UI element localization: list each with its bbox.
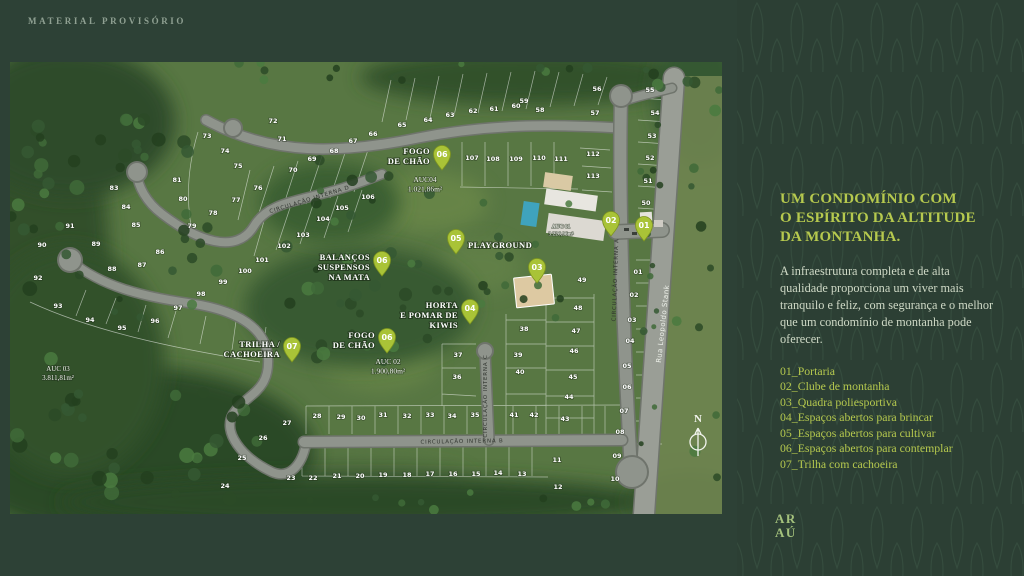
amenity-label: FOGO: [348, 330, 375, 340]
lot-number: 109: [509, 155, 523, 163]
lot-number: 39: [513, 351, 523, 359]
lot-number: 22: [308, 474, 317, 482]
lot-number: 46: [569, 347, 579, 355]
lot-number: 26: [258, 434, 268, 442]
lot-number: 42: [529, 411, 538, 419]
lot-number: 66: [368, 130, 378, 138]
lot-number: 52: [645, 154, 654, 162]
lot-number: 92: [33, 274, 42, 282]
panel-heading: UM CONDOMÍNIO COM O ESPÍRITO DA ALTITUDE…: [780, 190, 995, 247]
lot-number: 59: [519, 97, 529, 105]
svg-text:04: 04: [464, 304, 476, 313]
lot-number: 49: [577, 276, 587, 284]
lot-number: 32: [402, 412, 411, 420]
lot-number: 30: [356, 414, 366, 422]
lot-number: 19: [378, 471, 388, 479]
lot-number: 86: [155, 248, 165, 256]
auc-area-label: 1.021,86m²: [408, 185, 443, 194]
road-label: CIRCULAÇÃO INTERNA B: [420, 437, 503, 445]
svg-text:02: 02: [605, 216, 616, 225]
legend-item-07: 07_Trilha com cachoeira: [780, 457, 995, 473]
lot-number: 93: [53, 302, 62, 310]
amenity-label: TRILHA /: [239, 339, 280, 349]
lot-number: 97: [173, 304, 182, 312]
lot-number: 72: [268, 117, 277, 125]
masterplan-map-canvas: 0102030405060708091011121314151617181920…: [10, 62, 722, 514]
amenity-label: DE CHÃO: [388, 156, 430, 166]
amenity-label: BALANÇOS: [320, 252, 370, 262]
amenity-label: DE CHÃO: [333, 340, 375, 350]
lot-number: 87: [137, 261, 146, 269]
lot-number: 73: [202, 132, 211, 140]
lot-number: 36: [452, 373, 462, 381]
lot-number: 65: [397, 121, 407, 129]
lot-number: 05: [622, 362, 632, 370]
legend-item-01: 01_Portaria: [780, 364, 995, 380]
lot-number: 113: [586, 172, 600, 180]
lot-number: 94: [85, 316, 95, 324]
lot-number: 04: [625, 337, 635, 345]
lot-number: 48: [573, 304, 583, 312]
panel-body-text: A infraestrutura completa e de alta qual…: [780, 263, 995, 348]
gatehouse: [654, 220, 663, 227]
lot-number: 62: [468, 107, 477, 115]
legend-item-04: 04_Espaços abertos para brincar: [780, 410, 995, 426]
pool: [520, 201, 539, 227]
lot-number: 56: [592, 85, 602, 93]
lot-number: 23: [286, 474, 295, 482]
lot-number: 104: [316, 215, 330, 223]
lot-number: 14: [493, 469, 503, 477]
lot-number: 20: [355, 472, 365, 480]
lot-number: 01: [633, 268, 643, 276]
lot-number: 24: [220, 482, 230, 490]
lot-number: 47: [571, 327, 580, 335]
lot-number: 25: [237, 454, 247, 462]
lot-number: 74: [220, 147, 230, 155]
lot-number: 08: [615, 428, 625, 436]
amenity-label: PLAYGROUND: [468, 240, 532, 250]
lot-number: 57: [590, 109, 599, 117]
legend-item-06: 06_Espaços abertos para contemplar: [780, 441, 995, 457]
lot-number: 107: [465, 154, 479, 162]
lot-number: 78: [208, 209, 218, 217]
auc-area-label: 1.900,80m²: [371, 367, 406, 376]
lot-number: 60: [511, 102, 521, 110]
lot-number: 07: [619, 407, 628, 415]
lot-number: 16: [448, 470, 458, 478]
lot-number: 98: [196, 290, 206, 298]
lot-number: 58: [535, 106, 545, 114]
lot-number: 111: [554, 155, 568, 163]
lot-number: 99: [218, 278, 228, 286]
lot-number: 28: [312, 412, 322, 420]
svg-text:01: 01: [638, 221, 650, 230]
lot-number: 70: [288, 166, 298, 174]
lot-number: 105: [335, 204, 349, 212]
provisional-material-watermark: MATERIAL PROVISÓRIO: [28, 16, 186, 26]
lot-number: 69: [307, 155, 317, 163]
masterplan-map: 0102030405060708091011121314151617181920…: [10, 62, 722, 514]
lot-number: 54: [650, 109, 660, 117]
lot-number: 51: [643, 177, 653, 185]
auc-area-label: AUC04: [413, 175, 437, 184]
lot-number: 03: [627, 316, 636, 324]
lot-number: 84: [121, 203, 131, 211]
lot-number: 71: [277, 135, 287, 143]
lot-number: 09: [612, 452, 622, 460]
lot-number: 02: [629, 291, 638, 299]
lot-number: 102: [277, 242, 291, 250]
lot-number: 29: [336, 413, 346, 421]
lot-number: 106: [361, 193, 375, 201]
lot-number: 90: [37, 241, 47, 249]
amenity-label: HORTA: [426, 300, 459, 310]
lot-number: 85: [131, 221, 141, 229]
cul-de-sac: [128, 163, 146, 181]
legend-item-02: 02_Clube de montanha: [780, 379, 995, 395]
lot-number: 12: [553, 483, 562, 491]
lot-number: 68: [329, 147, 339, 155]
svg-text:07: 07: [286, 342, 297, 351]
lot-number: 55: [645, 86, 655, 94]
svg-text:N: N: [694, 413, 702, 425]
lot-number: 17: [425, 470, 434, 478]
lot-number: 75: [233, 162, 243, 170]
lot-number: 27: [282, 419, 291, 427]
lot-number: 91: [65, 222, 75, 230]
lot-number: 44: [564, 393, 574, 401]
lot-number: 61: [489, 105, 499, 113]
lot-number: 06: [622, 383, 632, 391]
lot-number: 101: [255, 256, 269, 264]
amenities-legend: 01_Portaria 02_Clube de montanha 03_Quad…: [780, 364, 995, 473]
lot-number: 79: [187, 222, 197, 230]
lot-number: 67: [348, 137, 357, 145]
lot-number: 88: [107, 265, 117, 273]
legend-item-05: 05_Espaços abertos para cultivar: [780, 426, 995, 442]
lot-number: 15: [471, 470, 481, 478]
svg-text:06: 06: [381, 333, 393, 342]
lot-number: 43: [560, 415, 569, 423]
lot-number: 100: [238, 267, 252, 275]
lot-number: 89: [91, 240, 101, 248]
lot-number: 83: [109, 184, 118, 192]
cul-de-sac: [225, 120, 241, 136]
lot-number: 37: [453, 351, 462, 359]
lot-number: 13: [517, 470, 526, 478]
lot-number: 34: [447, 412, 457, 420]
amenity-label: FOGO: [403, 146, 430, 156]
lot-number: 40: [515, 368, 525, 376]
lot-number: 108: [486, 155, 500, 163]
lot-number: 33: [425, 411, 434, 419]
auc-area-label: AUC 02: [375, 357, 400, 366]
legend-item-03: 03_Quadra poliesportiva: [780, 395, 995, 411]
amenity-label: NA MATA: [329, 272, 371, 282]
info-panel: UM CONDOMÍNIO COM O ESPÍRITO DA ALTITUDE…: [737, 0, 1024, 576]
svg-text:06: 06: [436, 150, 448, 159]
lot-number: 81: [172, 176, 182, 184]
lot-number: 18: [402, 471, 412, 479]
lot-number: 10: [610, 475, 620, 483]
lot-number: 41: [509, 411, 519, 419]
auc-area-label: AUC 03: [46, 365, 70, 373]
lot-number: 45: [568, 373, 578, 381]
amenity-label: CACHOEIRA: [224, 349, 281, 359]
amenity-label: SUSPENSOS: [318, 262, 370, 272]
svg-text:05: 05: [450, 234, 462, 243]
cul-de-sac: [611, 86, 631, 106]
lot-number: 80: [178, 195, 188, 203]
lot-number: 96: [150, 317, 160, 325]
amenity-label: KIWIS: [430, 320, 458, 330]
lot-number: 112: [586, 150, 600, 158]
lot-number: 63: [445, 111, 454, 119]
lot-number: 103: [296, 231, 310, 239]
lot-number: 76: [253, 184, 263, 192]
lot-number: 35: [470, 411, 480, 419]
lot-number: 77: [231, 196, 240, 204]
amenity-label: E POMAR DE: [400, 310, 458, 320]
auc-area-label: AUC 01: [552, 224, 571, 230]
lot-number: 21: [332, 472, 342, 480]
lot-number: 110: [532, 154, 546, 162]
svg-text:06: 06: [376, 256, 388, 265]
masterplan-slide: { "theme": { "background": "#2d4136", "a…: [0, 0, 1024, 576]
cul-de-sac: [617, 457, 647, 487]
lot-number: 50: [641, 199, 651, 207]
lot-number: 38: [519, 325, 529, 333]
lot-number: 95: [117, 324, 127, 332]
lot-number: 31: [378, 411, 388, 419]
arau-logo: AR AÚ: [775, 512, 797, 541]
auc-area-label: 3.811,81m²: [42, 374, 74, 382]
lot-number: 64: [423, 116, 433, 124]
lot-number: 11: [552, 456, 562, 464]
road-label: CIRCULAÇÃO INTERNA C: [482, 354, 489, 437]
auc-area-label: 3.226,96m²: [548, 232, 574, 238]
lot-number: 53: [647, 132, 656, 140]
svg-text:03: 03: [531, 263, 542, 272]
